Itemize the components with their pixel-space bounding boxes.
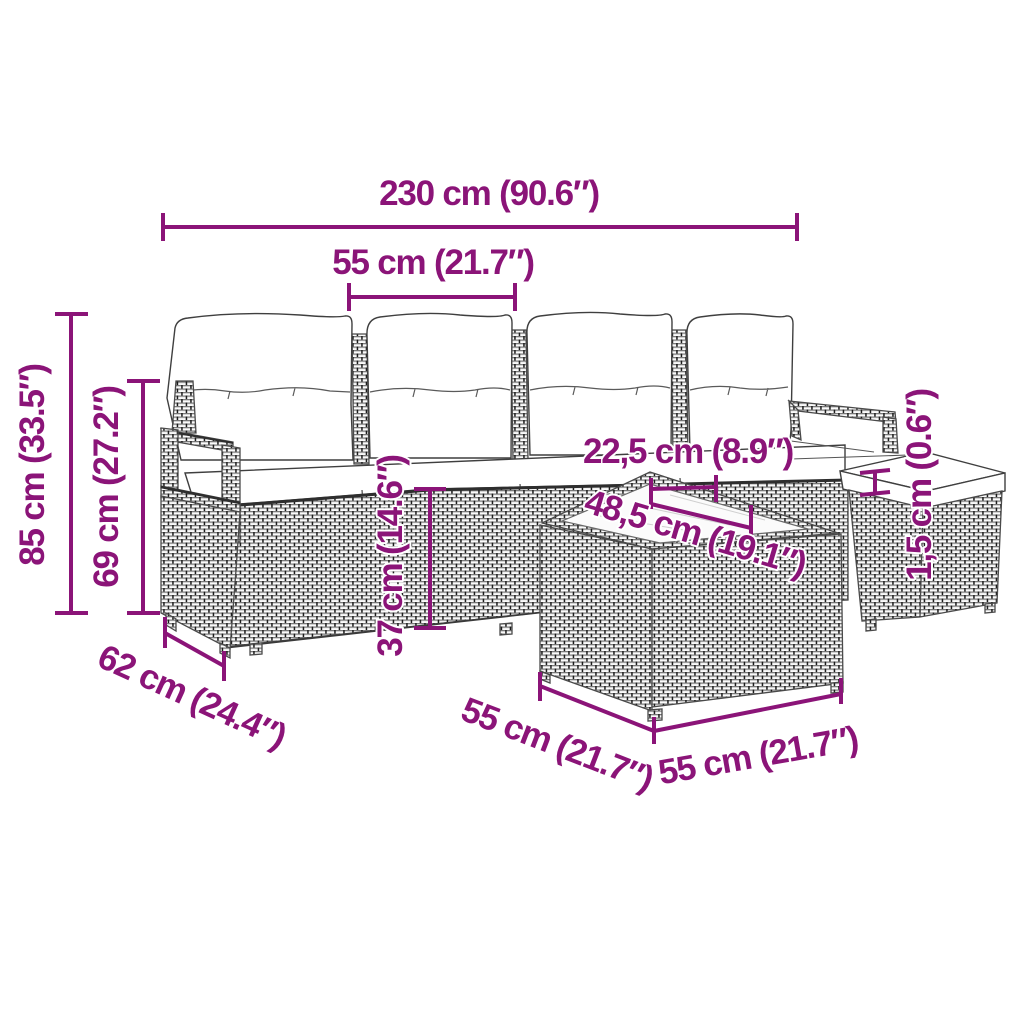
svg-text:85 cm (33.5″): 85 cm (33.5″) — [13, 364, 52, 566]
svg-text:230 cm (90.6″): 230 cm (90.6″) — [379, 174, 599, 213]
svg-text:1,5 cm (0.6″): 1,5 cm (0.6″) — [900, 389, 939, 581]
svg-text:22,5 cm (8.9″): 22,5 cm (8.9″) — [583, 432, 793, 471]
svg-text:69 cm (27.2″): 69 cm (27.2″) — [87, 386, 126, 588]
svg-text:55 cm (21.7″): 55 cm (21.7″) — [332, 243, 534, 282]
svg-text:37 cm (14.6″): 37 cm (14.6″) — [371, 455, 410, 657]
